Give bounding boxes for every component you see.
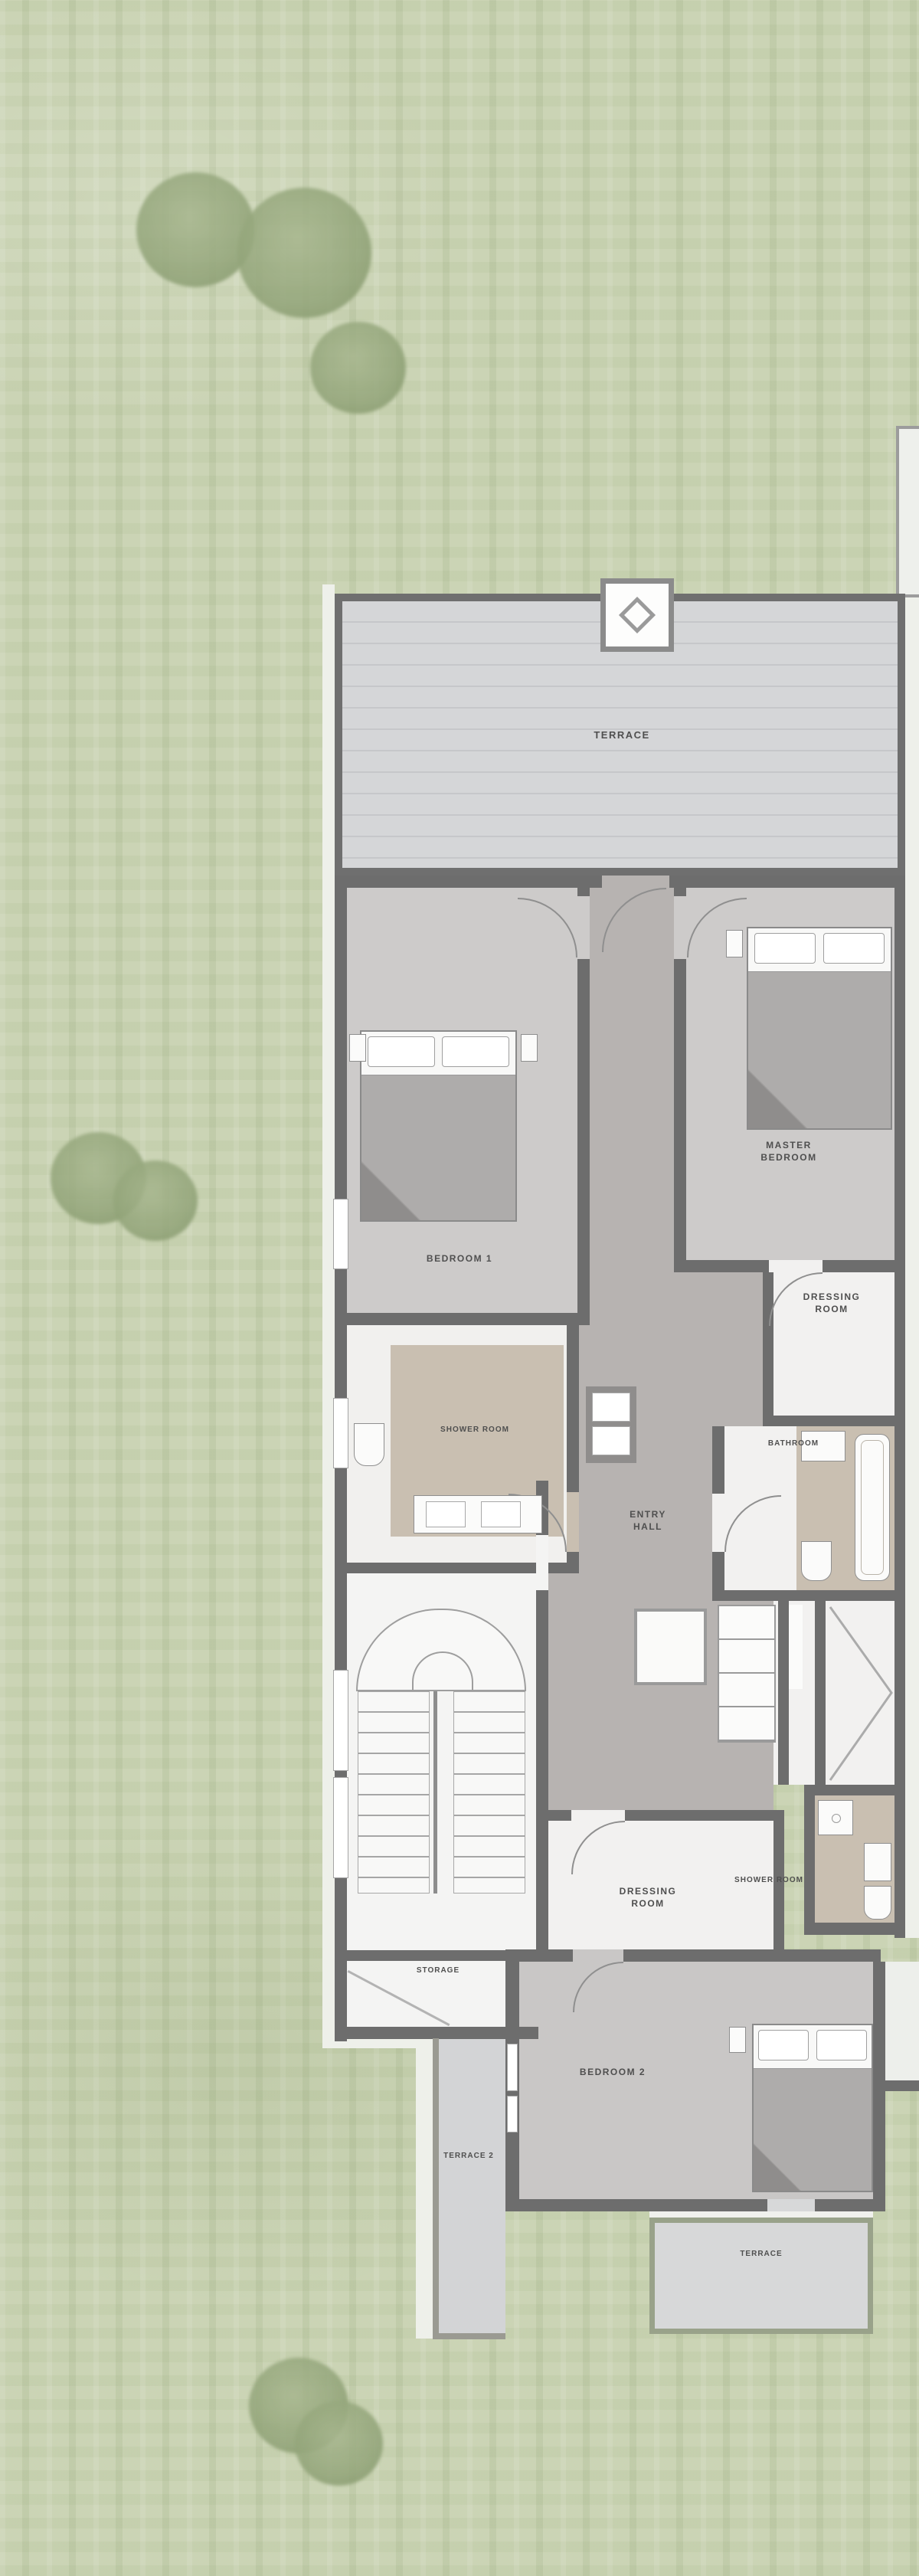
wall — [784, 1949, 881, 1962]
label-bedroom-2: BEDROOM 2 — [580, 2067, 646, 2079]
duvet — [748, 971, 891, 1128]
bedroom2-side-deck — [885, 1962, 919, 2084]
tree-icon — [295, 2401, 383, 2486]
nightstand-icon — [521, 1034, 538, 1062]
label-line: ENTRY — [630, 1509, 666, 1521]
wall — [505, 2199, 885, 2211]
terrace2-parapet — [433, 2038, 439, 2339]
wall — [885, 2080, 919, 2091]
window — [507, 2044, 518, 2091]
skylight-inner-icon — [619, 597, 656, 633]
door-opening — [769, 1260, 823, 1272]
bathtub-inner — [861, 1440, 884, 1575]
stair-rail — [433, 1691, 437, 1894]
label-line: ROOM — [620, 1898, 677, 1910]
bed-icon — [747, 927, 892, 1130]
wall — [804, 1795, 815, 1926]
sink-icon — [864, 1843, 891, 1881]
window — [333, 1398, 348, 1468]
door-opening — [577, 896, 590, 959]
wall — [778, 1601, 789, 1785]
label-dressing-room-1: DRESSING ROOM — [803, 1291, 861, 1315]
label-bathroom: BATHROOM — [768, 1439, 819, 1448]
stair-flight — [453, 1691, 525, 1894]
stair-flight — [358, 1691, 430, 1894]
door-opening — [767, 2199, 815, 2211]
void-hatch — [829, 1605, 893, 1782]
tree-icon — [113, 1160, 198, 1241]
wall — [804, 1923, 905, 1935]
duvet — [361, 1075, 515, 1220]
adjacent-structure — [896, 426, 919, 597]
label-line: MASTER — [760, 1140, 816, 1152]
sink-icon — [481, 1501, 521, 1527]
pillow — [368, 1036, 435, 1067]
label-line: ROOM — [803, 1304, 861, 1316]
terrace-bottom-platform — [649, 2218, 873, 2334]
pillow — [816, 2030, 867, 2060]
door-opening — [571, 1810, 625, 1821]
wall — [712, 1590, 905, 1601]
label-bedroom-1: BEDROOM 1 — [427, 1253, 492, 1265]
wardrobe-icon — [718, 1605, 776, 1743]
shower-drain — [832, 1814, 841, 1823]
door-leaf — [789, 1605, 803, 1689]
wall — [804, 1785, 905, 1795]
wall — [505, 1949, 784, 1962]
label-dressing-room-2: DRESSING ROOM — [620, 1886, 677, 1910]
door-opening — [567, 1492, 579, 1552]
toilet-icon — [354, 1423, 384, 1466]
label-terrace-top: TERRACE — [594, 729, 649, 742]
wall — [773, 1821, 784, 1949]
nightstand-icon — [726, 930, 743, 957]
duvet — [754, 2068, 872, 2191]
terrace2-parapet — [433, 2333, 505, 2339]
door-opening — [712, 1494, 724, 1552]
label-line: BEDROOM — [760, 1152, 816, 1164]
wall — [763, 1272, 773, 1416]
hall-table-icon — [634, 1609, 707, 1685]
window — [507, 2096, 518, 2132]
label-terrace-bottom: TERRACE — [740, 2249, 782, 2259]
hall-closet — [586, 1386, 636, 1463]
site-plan-canvas: TERRACE BEDROOM 1 MASTER BEDROOM DRESSIN… — [0, 0, 919, 2576]
door-opening — [573, 1949, 623, 1962]
toilet-icon — [801, 1541, 832, 1581]
plan-edging — [416, 2038, 433, 2339]
wall — [873, 1962, 885, 2211]
tree-icon — [237, 188, 371, 318]
label-line: DRESSING — [620, 1886, 677, 1898]
terrace2-floor — [439, 2038, 505, 2339]
appliance-icon — [592, 1426, 630, 1455]
tree-icon — [136, 172, 255, 287]
label-line: DRESSING — [803, 1291, 861, 1304]
pillow — [758, 2030, 809, 2060]
wall — [347, 1313, 590, 1325]
pillow — [442, 1036, 509, 1067]
nightstand-icon — [729, 2027, 746, 2053]
label-entry-hall: ENTRY HALL — [630, 1509, 666, 1533]
toilet-icon — [864, 1886, 891, 1920]
plan-edging — [905, 594, 919, 1938]
window — [333, 1670, 348, 1771]
label-shower-room-1: SHOWER ROOM — [440, 1425, 509, 1435]
tree-icon — [310, 322, 406, 414]
appliance-icon — [592, 1393, 630, 1422]
sink-icon — [426, 1501, 466, 1527]
pillow — [754, 933, 816, 964]
window — [333, 1777, 348, 1878]
dressing-room2-floor — [548, 1821, 773, 1949]
label-line: HALL — [630, 1521, 666, 1533]
door-opening — [602, 876, 669, 888]
wall — [815, 1601, 826, 1795]
label-terrace-2: TERRACE 2 — [443, 2151, 494, 2161]
bathtub-icon — [855, 1434, 890, 1581]
label-shower-room-2: SHOWER ROOM — [734, 1875, 803, 1885]
bed-icon — [360, 1030, 517, 1222]
wall-exterior-right — [894, 876, 905, 1938]
label-storage: STORAGE — [417, 1966, 459, 1975]
nightstand-icon — [349, 1034, 366, 1062]
pillow — [823, 933, 885, 964]
terrace-skylight — [600, 578, 674, 652]
label-master-bedroom: MASTER BEDROOM — [760, 1140, 816, 1164]
wall-stair — [536, 1598, 548, 1961]
bed-icon — [752, 2024, 873, 2192]
door-opening — [674, 896, 686, 959]
shower-tray-icon — [818, 1800, 853, 1835]
terrace-bottom-gap — [649, 2211, 873, 2218]
window — [333, 1199, 348, 1269]
wall — [763, 1416, 905, 1426]
